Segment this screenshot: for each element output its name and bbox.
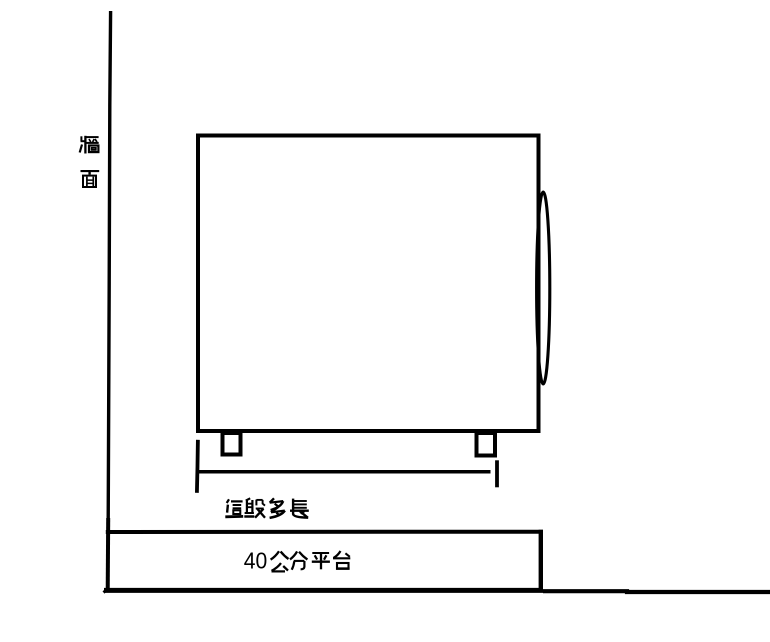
svg-text:40: 40 xyxy=(244,548,267,574)
